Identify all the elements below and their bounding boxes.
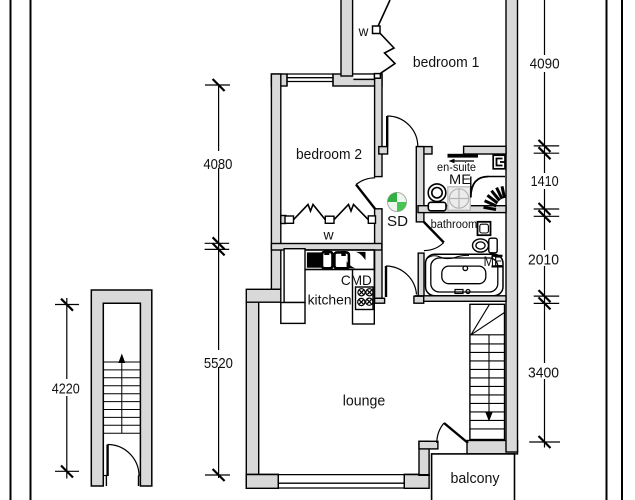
svg-text:3400: 3400 bbox=[528, 364, 559, 381]
svg-text:CMD: CMD bbox=[341, 272, 372, 288]
svg-text:balcony: balcony bbox=[451, 470, 500, 487]
svg-text:4220: 4220 bbox=[52, 380, 80, 397]
svg-text:5520: 5520 bbox=[204, 355, 233, 372]
svg-text:ME: ME bbox=[484, 253, 503, 269]
svg-text:SD: SD bbox=[387, 213, 408, 230]
svg-text:lounge: lounge bbox=[343, 394, 386, 410]
svg-text:ME: ME bbox=[449, 171, 471, 187]
svg-text:bathroom: bathroom bbox=[431, 219, 478, 231]
svg-text:bedroom 2: bedroom 2 bbox=[296, 146, 362, 163]
svg-text:1410: 1410 bbox=[531, 173, 559, 190]
svg-text:w: w bbox=[358, 24, 369, 39]
svg-text:4080: 4080 bbox=[203, 156, 232, 173]
svg-text:2010: 2010 bbox=[528, 251, 559, 268]
svg-text:bedroom 1: bedroom 1 bbox=[413, 54, 480, 71]
svg-text:4090: 4090 bbox=[530, 55, 560, 72]
svg-text:kitchen: kitchen bbox=[308, 291, 352, 307]
svg-text:w: w bbox=[322, 226, 334, 242]
